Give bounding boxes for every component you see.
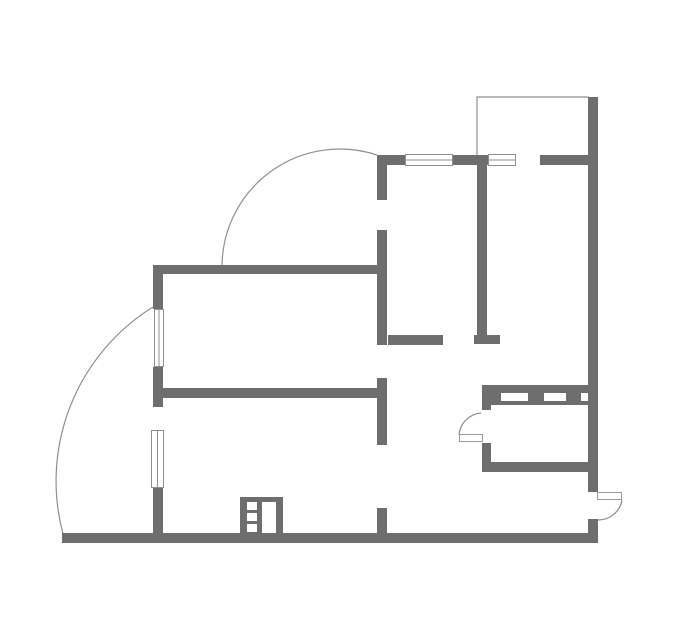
right-exterior-wall	[588, 97, 598, 492]
kitchen-wall-above-door	[482, 405, 491, 410]
kitchen-counter-band-cutout-1	[501, 393, 528, 401]
entry-door-leaf	[598, 493, 622, 500]
bedroom-divider-wall	[477, 165, 487, 335]
central-wall-stub	[377, 508, 387, 533]
living-room-south-wall	[153, 388, 377, 398]
bottom-exterior-wall	[62, 533, 598, 543]
kitchen-door-leaf	[460, 435, 483, 442]
entry-cabinet	[240, 497, 283, 534]
central-wall-lower	[377, 378, 387, 445]
entry-cabinet-cutout-4	[262, 502, 276, 533]
entry-cabinet-cutout-3	[247, 524, 257, 532]
left-wall-mid	[153, 367, 163, 407]
kitchen-counter-band	[482, 385, 588, 405]
left-wall-lower	[153, 488, 163, 533]
floor-plan-canvas	[0, 0, 679, 634]
entry-cabinet-cutout-1	[247, 502, 257, 510]
upper-room-top-wall	[153, 265, 387, 274]
central-wall-upper	[377, 165, 387, 200]
floor-plan	[0, 0, 679, 634]
kitchen-south-wall	[482, 462, 598, 472]
hall-top-wall	[388, 335, 443, 345]
top-wall-right	[540, 155, 588, 165]
entry-cabinet-cutout-2	[247, 513, 257, 521]
hall-wall-t-foot	[474, 335, 500, 344]
top-wall-mid	[453, 155, 488, 165]
central-wall-middle	[377, 230, 387, 345]
kitchen-counter-band-cutout-2	[544, 393, 566, 401]
kitchen-counter-band-cutout-3	[581, 393, 588, 401]
top-wall-left	[377, 155, 405, 165]
